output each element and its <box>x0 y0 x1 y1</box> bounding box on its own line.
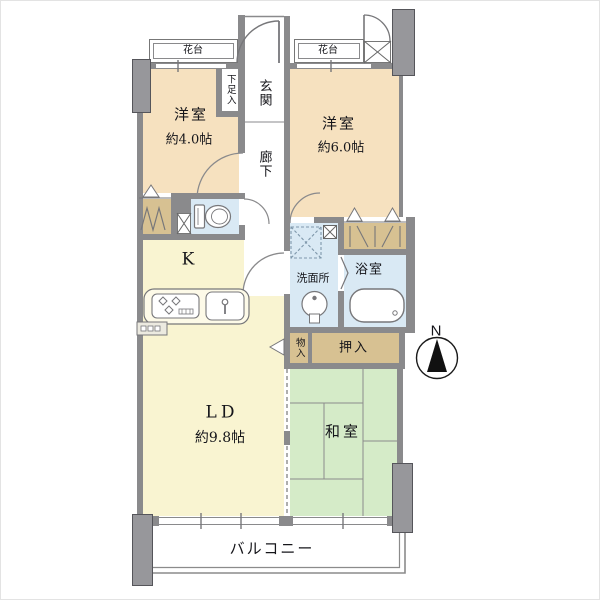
label-kitchen: K <box>182 252 195 269</box>
label-balcony: バルコニー <box>230 542 315 557</box>
wall-japanese-right <box>397 369 403 463</box>
wall-above-pipe-space <box>177 199 191 213</box>
washroom-door-arc <box>243 253 284 294</box>
wall-corridor-left-upper <box>238 15 245 153</box>
compass-north-icon <box>417 338 458 379</box>
label-flower-stand-right: 花台 <box>318 46 338 56</box>
japanese-room-floor <box>290 369 397 516</box>
wall-monoire-divider <box>308 333 312 363</box>
floor-plan: 洋室 約4.0帖 洋室 約6.0帖 玄関 下足入 廊下 K 洗面所 浴室 押入 … <box>0 0 600 600</box>
label-flower-stand-left: 花台 <box>183 46 203 56</box>
closet-hanger-floor <box>139 199 171 234</box>
pillar-bottom-right <box>392 463 413 533</box>
label-hallway: 廊下 <box>258 150 271 178</box>
pillar-top-right <box>392 9 415 76</box>
label-living-dining: LD <box>206 405 239 422</box>
label-living-dining-size: 約9.8帖 <box>195 431 245 445</box>
pipe-space-box <box>177 213 191 234</box>
toilet-door-arc <box>244 199 269 224</box>
wall-sanitary-bottom <box>284 327 415 333</box>
label-monoire: 物入 <box>294 338 304 359</box>
wall-left <box>137 63 143 516</box>
wall-shoebox-left <box>216 63 222 117</box>
wall-oshiire-right <box>399 333 405 369</box>
wall-washroom-bath-lower <box>338 291 344 327</box>
closet-hatch-floor <box>344 223 406 249</box>
pillar-top-left <box>132 59 151 113</box>
wall-western-b-right <box>399 69 403 217</box>
label-entrance: 玄関 <box>258 79 271 107</box>
label-washroom: 洗面所 <box>297 273 330 284</box>
wall-bottom-b <box>279 516 293 526</box>
wall-toilet-bottom <box>137 234 245 240</box>
pillar-bottom-left <box>132 514 153 586</box>
duct-door-arc <box>364 15 390 41</box>
label-western-b: 洋室 <box>322 117 356 132</box>
label-western-a: 洋室 <box>174 108 208 123</box>
wall-closet-hatch-bottom <box>344 249 406 255</box>
wall-bath-right <box>406 217 415 333</box>
label-oshiire: 押入 <box>339 342 369 355</box>
wall-oshiire-bottom <box>284 363 405 369</box>
label-shoe-cabinet: 下足入 <box>225 74 235 106</box>
label-bathroom: 浴室 <box>355 264 383 277</box>
room-western-a-floor2 <box>143 117 239 193</box>
label-western-b-size: 約6.0帖 <box>318 142 365 155</box>
window-western-b-top <box>297 63 371 69</box>
duct-box <box>364 41 391 63</box>
wall-corridor-right <box>284 16 290 251</box>
label-western-a-size: 約4.0帖 <box>166 134 213 147</box>
label-compass-north: N <box>431 324 442 339</box>
label-japanese-room: 和室 <box>325 425 361 440</box>
wall-stub-ld-japanese <box>284 431 290 445</box>
window-japanese-balcony <box>293 517 387 525</box>
window-western-a-top <box>156 63 226 69</box>
toilet-floor <box>191 199 239 234</box>
window-ld-balcony <box>159 517 279 525</box>
